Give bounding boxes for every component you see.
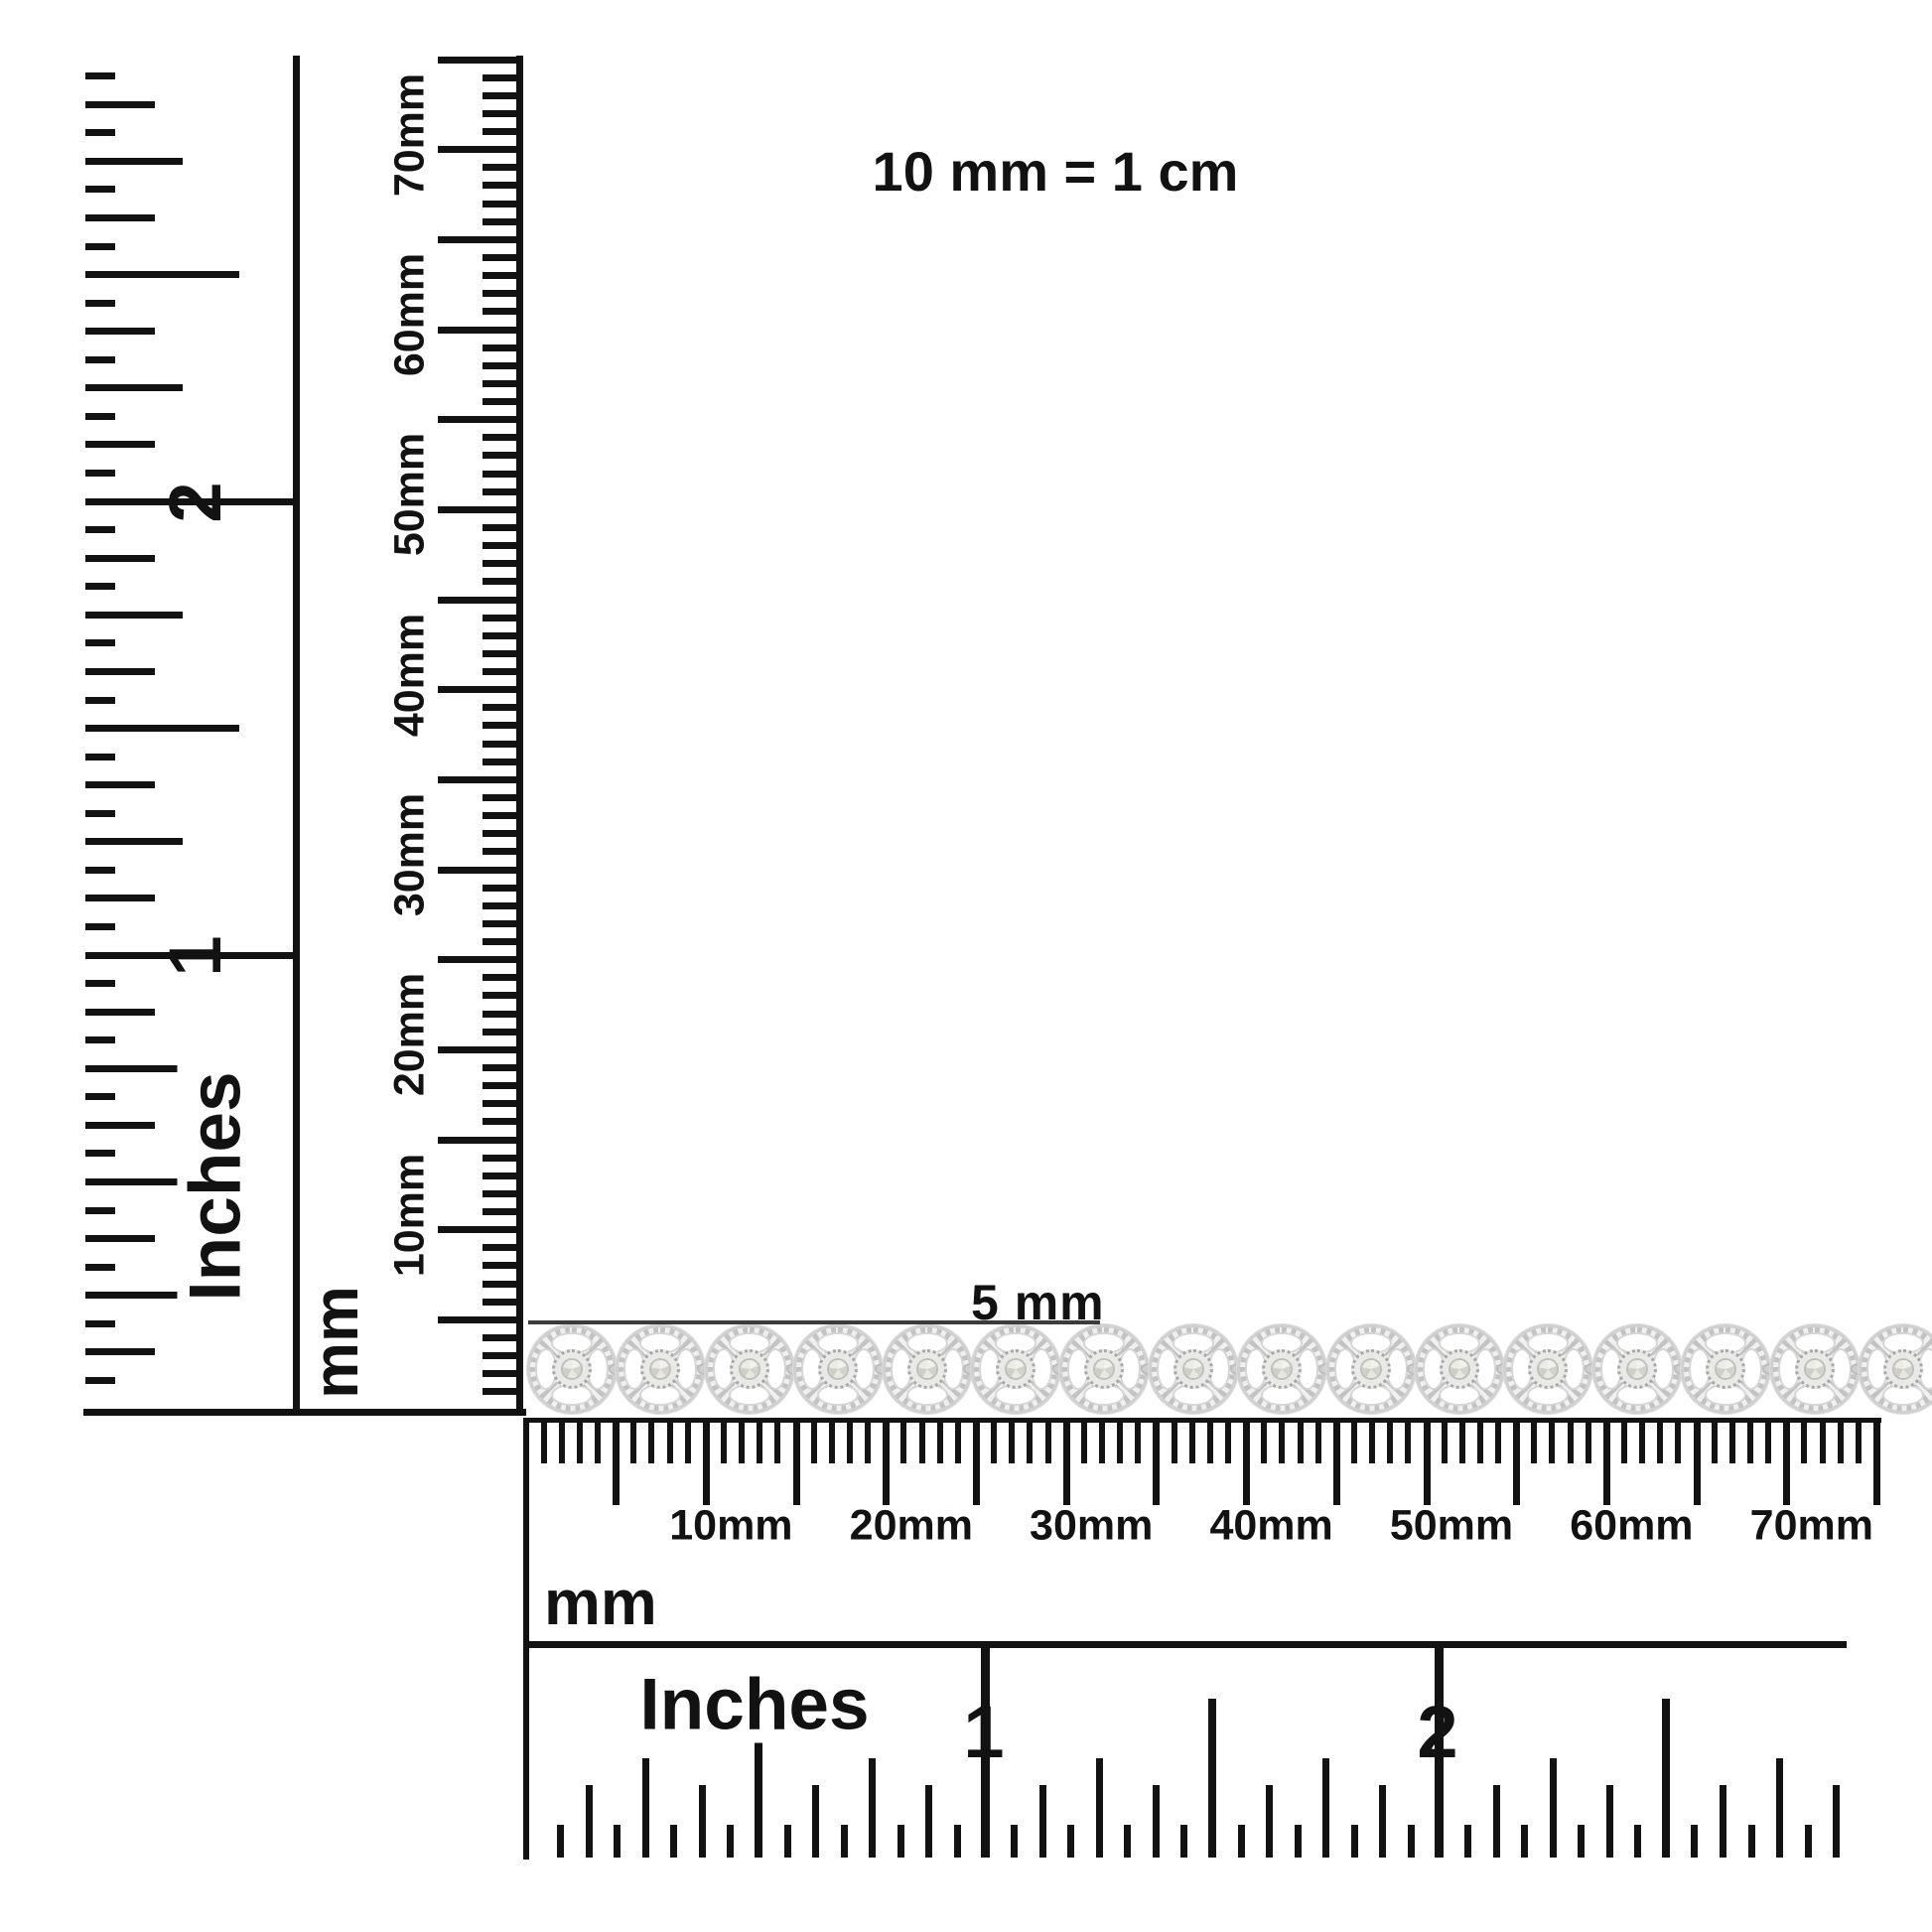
left-inch-tick	[85, 980, 115, 987]
vertical-mm-tick	[483, 164, 519, 171]
bottom-mm-label: 10mm	[669, 1505, 792, 1548]
bottom-mm-tick	[1225, 1421, 1231, 1463]
bottom-mm-label: 60mm	[1570, 1505, 1693, 1548]
bottom-inch-tick	[1833, 1785, 1840, 1858]
left-inch-tick	[85, 1150, 115, 1157]
vertical-mm-tick	[483, 1281, 519, 1288]
link-center-diamond	[1450, 1360, 1468, 1378]
left-inch-tick	[85, 1320, 115, 1327]
bottom-inch-tick	[1662, 1699, 1670, 1858]
vertical-mm-label: 50mm	[389, 433, 432, 556]
bottom-mm-tick	[559, 1421, 565, 1463]
vertical-mm-tick	[438, 327, 519, 334]
bottom-mm-tick	[883, 1421, 890, 1505]
bottom-mm-tick	[1747, 1421, 1753, 1463]
bottom-mm-tick	[811, 1421, 817, 1463]
left-inch-tick	[85, 158, 183, 165]
link-center-diamond	[1628, 1360, 1646, 1378]
vertical-mm-label: 30mm	[389, 793, 432, 916]
vertical-mm-tick	[438, 1316, 519, 1323]
bottom-inch-ruler-unit: Inches	[631, 1667, 877, 1743]
bottom-mm-tick	[1621, 1421, 1627, 1463]
bottom-inch-tick	[1521, 1825, 1528, 1858]
vertical-mm-tick	[483, 290, 519, 297]
left-inch-tick	[85, 243, 115, 250]
bottom-inch-tick	[1295, 1825, 1302, 1858]
vertical-mm-tick	[483, 632, 519, 639]
vertical-mm-tick	[438, 57, 519, 64]
left-inch-tick	[85, 271, 239, 278]
bracelet-link	[1592, 1324, 1682, 1414]
bottom-mm-tick	[1495, 1421, 1501, 1463]
left-inch-tick	[85, 1264, 115, 1271]
left-inch-tick	[85, 1348, 155, 1355]
vertical-mm-tick	[483, 218, 519, 225]
left-inch-tick	[85, 101, 155, 108]
bottom-mm-tick	[1477, 1421, 1483, 1463]
link-center-diamond	[918, 1360, 936, 1378]
bottom-mm-tick	[1729, 1421, 1735, 1463]
bottom-mm-tick	[1153, 1421, 1160, 1505]
bottom-mm-tick	[919, 1421, 925, 1463]
vertical-mm-label: 20mm	[389, 973, 432, 1096]
left-inch-tick	[85, 214, 155, 221]
bottom-inch-tick	[642, 1758, 649, 1858]
left-inch-tick	[85, 413, 115, 420]
bottom-inch-tick	[1606, 1785, 1613, 1858]
bracelet-link	[616, 1324, 705, 1414]
left-inch-tick	[85, 1009, 155, 1016]
bracelet-link	[1503, 1324, 1592, 1414]
bottom-inch-tick	[614, 1825, 621, 1858]
vertical-mm-tick	[483, 650, 519, 657]
left-inch-tick	[85, 328, 155, 335]
vertical-mm-tick	[483, 362, 519, 369]
bottom-mm-tick	[1135, 1421, 1141, 1463]
left-inch-tick	[85, 300, 115, 307]
vertical-mm-label: 40mm	[389, 614, 432, 737]
bracelet-link	[1059, 1324, 1149, 1414]
left-inch-tick	[85, 838, 183, 845]
bottom-inch-tick	[1238, 1825, 1245, 1858]
bottom-inch-tick	[869, 1758, 876, 1858]
vertical-mm-tick	[438, 1046, 519, 1053]
bottom-mm-tick	[1531, 1421, 1537, 1463]
vertical-mm-tick	[483, 272, 519, 279]
bottom-inch-tick	[1464, 1825, 1471, 1858]
bottom-mm-label: 20mm	[850, 1505, 973, 1548]
vertical-mm-tick	[483, 1334, 519, 1341]
bottom-inch-tick	[1634, 1825, 1641, 1858]
bottom-inch-tick	[1408, 1825, 1415, 1858]
vertical-mm-tick	[483, 1388, 519, 1395]
link-center-diamond	[563, 1360, 581, 1378]
bottom-inch-tick	[897, 1825, 904, 1858]
bottom-mm-tick	[1694, 1421, 1701, 1505]
vertical-mm-tick	[483, 885, 519, 892]
vertical-mm-tick	[483, 110, 519, 117]
bracelet-link	[1237, 1324, 1326, 1414]
vertical-mm-tick	[483, 1352, 519, 1359]
bottom-mm-tick	[648, 1421, 654, 1463]
bottom-inch-tick	[841, 1825, 848, 1858]
vertical-mm-tick	[438, 597, 519, 604]
vertical-mm-tick	[483, 1244, 519, 1251]
link-center-diamond	[1806, 1360, 1824, 1378]
link-center-diamond	[741, 1360, 759, 1378]
left-inch-tick	[85, 923, 115, 930]
bottom-mm-tick	[1351, 1421, 1357, 1463]
vertical-mm-tick	[483, 704, 519, 711]
bottom-mm-tick	[1675, 1421, 1681, 1463]
bottom-mm-tick	[1586, 1421, 1591, 1463]
bottom-inch-tick	[1266, 1785, 1273, 1858]
bottom-mm-tick	[1783, 1421, 1790, 1505]
bottom-inch-tick	[784, 1825, 791, 1858]
bottom-mm-label: 30mm	[1030, 1505, 1153, 1548]
bracelet-link	[1859, 1324, 1932, 1414]
vertical-mm-tick	[483, 578, 519, 585]
left-inch-tick	[85, 754, 115, 760]
bottom-inch-tick	[1776, 1758, 1783, 1858]
bottom-mm-tick	[1387, 1421, 1393, 1463]
left-inch-tick	[85, 356, 115, 363]
bracelet-link	[883, 1324, 972, 1414]
vertical-mm-tick	[483, 722, 519, 729]
bottom-mm-ruler-unit: mm	[544, 1571, 657, 1634]
bottom-ruler-divider	[523, 1641, 1847, 1648]
bottom-inch-tick	[586, 1785, 593, 1858]
vertical-mm-label: 70mm	[389, 73, 432, 197]
bottom-inch-tick	[1805, 1825, 1812, 1858]
bracelet-link	[1415, 1324, 1504, 1414]
bottom-inch-tick	[1351, 1825, 1358, 1858]
bottom-mm-tick	[1424, 1421, 1431, 1505]
left-inch-tick	[85, 1065, 183, 1072]
left-inch-tick	[85, 186, 115, 193]
vertical-mm-tick	[483, 471, 519, 478]
left-inch-tick	[85, 1207, 115, 1214]
bottom-mm-label: 50mm	[1390, 1505, 1513, 1548]
vertical-mm-tick	[483, 488, 519, 495]
bottom-mm-tick	[613, 1421, 620, 1505]
vertical-mm-tick	[438, 1226, 519, 1233]
bottom-mm-tick	[1549, 1421, 1555, 1463]
vertical-mm-tick	[483, 794, 519, 801]
bottom-mm-tick	[1568, 1421, 1574, 1463]
vertical-mm-tick	[483, 1173, 519, 1179]
bottom-mm-tick	[1639, 1421, 1645, 1463]
bottom-mm-tick	[541, 1421, 547, 1463]
bottom-inch-tick	[1720, 1785, 1726, 1858]
link-center-diamond	[1894, 1360, 1912, 1378]
bottom-mm-tick	[955, 1421, 961, 1463]
left-inch-tick	[85, 781, 155, 788]
bottom-mm-tick	[1027, 1421, 1033, 1463]
vertical-mm-tick	[438, 416, 519, 423]
vertical-mm-tick	[483, 830, 519, 837]
bottom-mm-tick	[1873, 1421, 1880, 1505]
scale-note: 10 mm = 1 cm	[873, 144, 1239, 200]
left-inch-tick	[85, 867, 115, 874]
bottom-mm-tick	[721, 1421, 727, 1463]
bottom-mm-tick	[1279, 1421, 1285, 1463]
vertical-mm-tick	[483, 345, 519, 351]
vertical-mm-tick	[483, 1082, 519, 1089]
bottom-mm-tick	[900, 1421, 906, 1463]
link-center-diamond	[1184, 1360, 1202, 1378]
bottom-mm-tick	[1765, 1421, 1771, 1463]
bottom-mm-tick	[865, 1421, 871, 1463]
bottom-mm-tick	[1657, 1421, 1663, 1463]
bracelet-link	[1770, 1324, 1860, 1414]
vertical-mm-tick	[438, 146, 519, 153]
bottom-inch-tick	[954, 1825, 961, 1858]
left-rulers-baseline	[83, 1409, 526, 1416]
bottom-mm-label: 70mm	[1750, 1505, 1873, 1548]
bottom-mm-tick	[685, 1421, 691, 1463]
bottom-inch-tick	[727, 1825, 734, 1858]
bottom-mm-tick	[793, 1421, 800, 1505]
bottom-mm-tick	[595, 1421, 601, 1463]
left-inch-tick	[85, 555, 155, 562]
left-inch-tick	[85, 668, 155, 675]
bottom-mm-tick	[1099, 1421, 1105, 1463]
vertical-mm-tick	[483, 1208, 519, 1215]
bottom-inch-tick	[1578, 1825, 1585, 1858]
dimension-label: 5 mm	[971, 1278, 1105, 1327]
vertical-mm-tick	[483, 182, 519, 189]
left-inch-tick	[85, 1036, 115, 1043]
vertical-mm-tick	[483, 902, 519, 909]
bottom-inch-tick	[1208, 1699, 1216, 1858]
bottom-inch-tick	[1180, 1825, 1187, 1858]
left-inch-tick	[85, 1235, 155, 1242]
bottom-inch-tick	[1153, 1785, 1160, 1858]
bottom-mm-tick	[1801, 1421, 1807, 1463]
vertical-mm-tick	[483, 201, 519, 207]
vertical-mm-tick	[483, 524, 519, 531]
bottom-inch-tick	[670, 1825, 677, 1858]
vertical-mm-tick	[483, 1011, 519, 1018]
bracelet-link	[1681, 1324, 1770, 1414]
bottom-mm-tick	[937, 1421, 943, 1463]
vertical-mm-tick	[483, 74, 519, 81]
bottom-inch-tick	[1011, 1825, 1018, 1858]
bottom-mm-tick	[973, 1421, 980, 1505]
vertical-mm-ruler-unit: mm	[304, 1286, 367, 1399]
vertical-mm-tick	[483, 452, 519, 459]
bottom-inch-tick	[1379, 1785, 1386, 1858]
vertical-mm-tick	[483, 434, 519, 441]
bottom-inch-tick	[1550, 1758, 1557, 1858]
vertical-mm-tick	[483, 759, 519, 765]
vertical-mm-tick	[483, 1100, 519, 1107]
bracelet-link	[705, 1324, 794, 1414]
left-inch-tick	[85, 583, 115, 590]
vertical-mm-tick	[483, 398, 519, 405]
left-inch-tick	[85, 1122, 155, 1129]
bottom-inch-tick	[1691, 1825, 1698, 1858]
bottom-inch-tick	[699, 1785, 706, 1858]
measurement-diagram: 5 mm 10 mm = 1 cm 12 Inches 10mm20mm30mm…	[0, 0, 1932, 1932]
vertical-mm-tick	[438, 506, 519, 513]
left-inch-tick	[85, 129, 115, 136]
vertical-mm-tick	[483, 1029, 519, 1035]
vertical-mm-tick	[483, 812, 519, 819]
bottom-mm-tick	[1838, 1421, 1844, 1463]
bottom-inch-tick	[1096, 1758, 1103, 1858]
bottom-mm-tick	[1081, 1421, 1087, 1463]
vertical-mm-tick	[483, 1155, 519, 1162]
bottom-inch-tick	[1748, 1825, 1755, 1858]
vertical-mm-tick	[483, 992, 519, 999]
left-inch-tick	[85, 1377, 115, 1384]
vertical-mm-tick	[483, 1064, 519, 1071]
vertical-mm-tick	[483, 380, 519, 387]
bottom-mm-tick	[1172, 1421, 1177, 1463]
left-inch-tick	[85, 1093, 115, 1100]
bottom-mm-tick	[1063, 1421, 1070, 1505]
bottom-mm-tick	[703, 1421, 710, 1505]
bottom-inch-tick	[1322, 1758, 1329, 1858]
vertical-mm-label: 10mm	[389, 1154, 432, 1277]
left-inch-tick	[85, 384, 183, 391]
bottom-mm-tick	[1405, 1421, 1411, 1463]
bracelet-link	[793, 1324, 883, 1414]
vertical-mm-tick	[438, 236, 519, 243]
bottom-mm-tick	[1442, 1421, 1448, 1463]
link-center-diamond	[1007, 1360, 1025, 1378]
left-inch-numeral: 1	[159, 935, 232, 976]
bottom-mm-tick	[829, 1421, 835, 1463]
bottom-mm-tick	[1712, 1421, 1718, 1463]
bottom-mm-tick	[1603, 1421, 1610, 1505]
vertical-mm-tick	[438, 776, 519, 783]
bottom-mm-tick	[1513, 1421, 1520, 1505]
bracelet-link	[527, 1324, 617, 1414]
left-inch-tick	[85, 895, 155, 901]
bottom-mm-tick	[1333, 1421, 1340, 1505]
bottom-mm-tick	[739, 1421, 745, 1463]
bottom-mm-tick	[991, 1421, 997, 1463]
vertical-mm-tick	[483, 128, 519, 135]
left-inch-tick	[85, 612, 183, 619]
bottom-mm-tick	[757, 1421, 762, 1463]
bottom-mm-tick	[667, 1421, 673, 1463]
bottom-mm-tick	[1459, 1421, 1465, 1463]
link-center-diamond	[1362, 1360, 1380, 1378]
bottom-mm-tick	[630, 1421, 636, 1463]
bottom-mm-tick	[577, 1421, 583, 1463]
bottom-mm-tick	[1045, 1421, 1051, 1463]
vertical-mm-tick	[438, 956, 519, 963]
bottom-mm-tick	[1315, 1421, 1321, 1463]
vertical-mm-tick	[438, 867, 519, 874]
left-inch-ruler-unit: Inches	[178, 1063, 254, 1309]
bottom-mm-tick	[1261, 1421, 1267, 1463]
vertical-mm-tick	[483, 542, 519, 549]
vertical-mm-tick	[483, 254, 519, 261]
bottom-mm-tick	[1243, 1421, 1250, 1505]
vertical-mm-tick	[483, 1299, 519, 1306]
bottom-mm-label: 40mm	[1209, 1505, 1332, 1548]
bottom-inch-tick	[1493, 1785, 1500, 1858]
bottom-inch-numeral: 2	[1417, 1696, 1457, 1769]
vertical-mm-tick	[483, 1190, 519, 1197]
vertical-mm-tick	[483, 1370, 519, 1377]
bottom-mm-tick	[1298, 1421, 1304, 1463]
left-inch-tick	[85, 526, 115, 533]
bottom-mm-tick	[774, 1421, 780, 1463]
left-inch-numeral: 2	[159, 483, 232, 523]
bracelet-link	[971, 1324, 1060, 1414]
left-inch-tick	[85, 810, 115, 817]
bottom-inch-tick	[812, 1785, 819, 1858]
vertical-mm-tick	[483, 974, 519, 981]
bottom-inch-numeral: 1	[963, 1696, 1004, 1769]
vertical-mm-label: 60mm	[389, 253, 432, 376]
left-inch-ruler-edge	[293, 56, 300, 1413]
vertical-mm-tick	[483, 615, 519, 621]
bracelet-link	[1149, 1324, 1238, 1414]
vertical-mm-tick	[483, 848, 519, 855]
bottom-inch-tick	[1039, 1785, 1046, 1858]
bottom-inch-tick	[557, 1825, 564, 1858]
vertical-mm-tick	[438, 1137, 519, 1144]
bottom-mm-tick	[1369, 1421, 1375, 1463]
left-inch-tick	[85, 725, 239, 732]
bottom-mm-tick	[847, 1421, 853, 1463]
bottom-inch-tick	[1124, 1825, 1131, 1858]
bottom-mm-tick	[1009, 1421, 1015, 1463]
bottom-mm-tick	[1820, 1421, 1826, 1463]
vertical-mm-tick	[483, 560, 519, 567]
bottom-mm-tick	[1189, 1421, 1195, 1463]
left-inch-tick	[85, 470, 115, 477]
vertical-mm-tick	[483, 668, 519, 675]
vertical-mm-tick	[483, 1262, 519, 1269]
vertical-mm-tick	[483, 741, 519, 748]
bottom-inch-tick	[925, 1785, 932, 1858]
bottom-rulers-left-edge	[523, 1418, 529, 1860]
vertical-mm-tick	[483, 92, 519, 99]
left-inch-tick	[85, 441, 155, 448]
left-inch-tick	[85, 697, 115, 704]
bottom-mm-tick	[1117, 1421, 1123, 1463]
vertical-mm-tick	[438, 686, 519, 693]
left-inch-tick	[85, 639, 115, 646]
vertical-mm-tick	[483, 308, 519, 315]
vertical-mm-tick	[483, 938, 519, 945]
left-inch-tick	[85, 72, 115, 79]
vertical-mm-tick	[483, 1118, 519, 1125]
vertical-mm-tick	[483, 920, 519, 927]
bottom-inch-tick	[1067, 1825, 1074, 1858]
left-inch-tick	[85, 1292, 183, 1299]
bracelet-link	[1326, 1324, 1416, 1414]
bottom-mm-tick	[1856, 1421, 1862, 1463]
bottom-mm-tick	[1207, 1421, 1213, 1463]
